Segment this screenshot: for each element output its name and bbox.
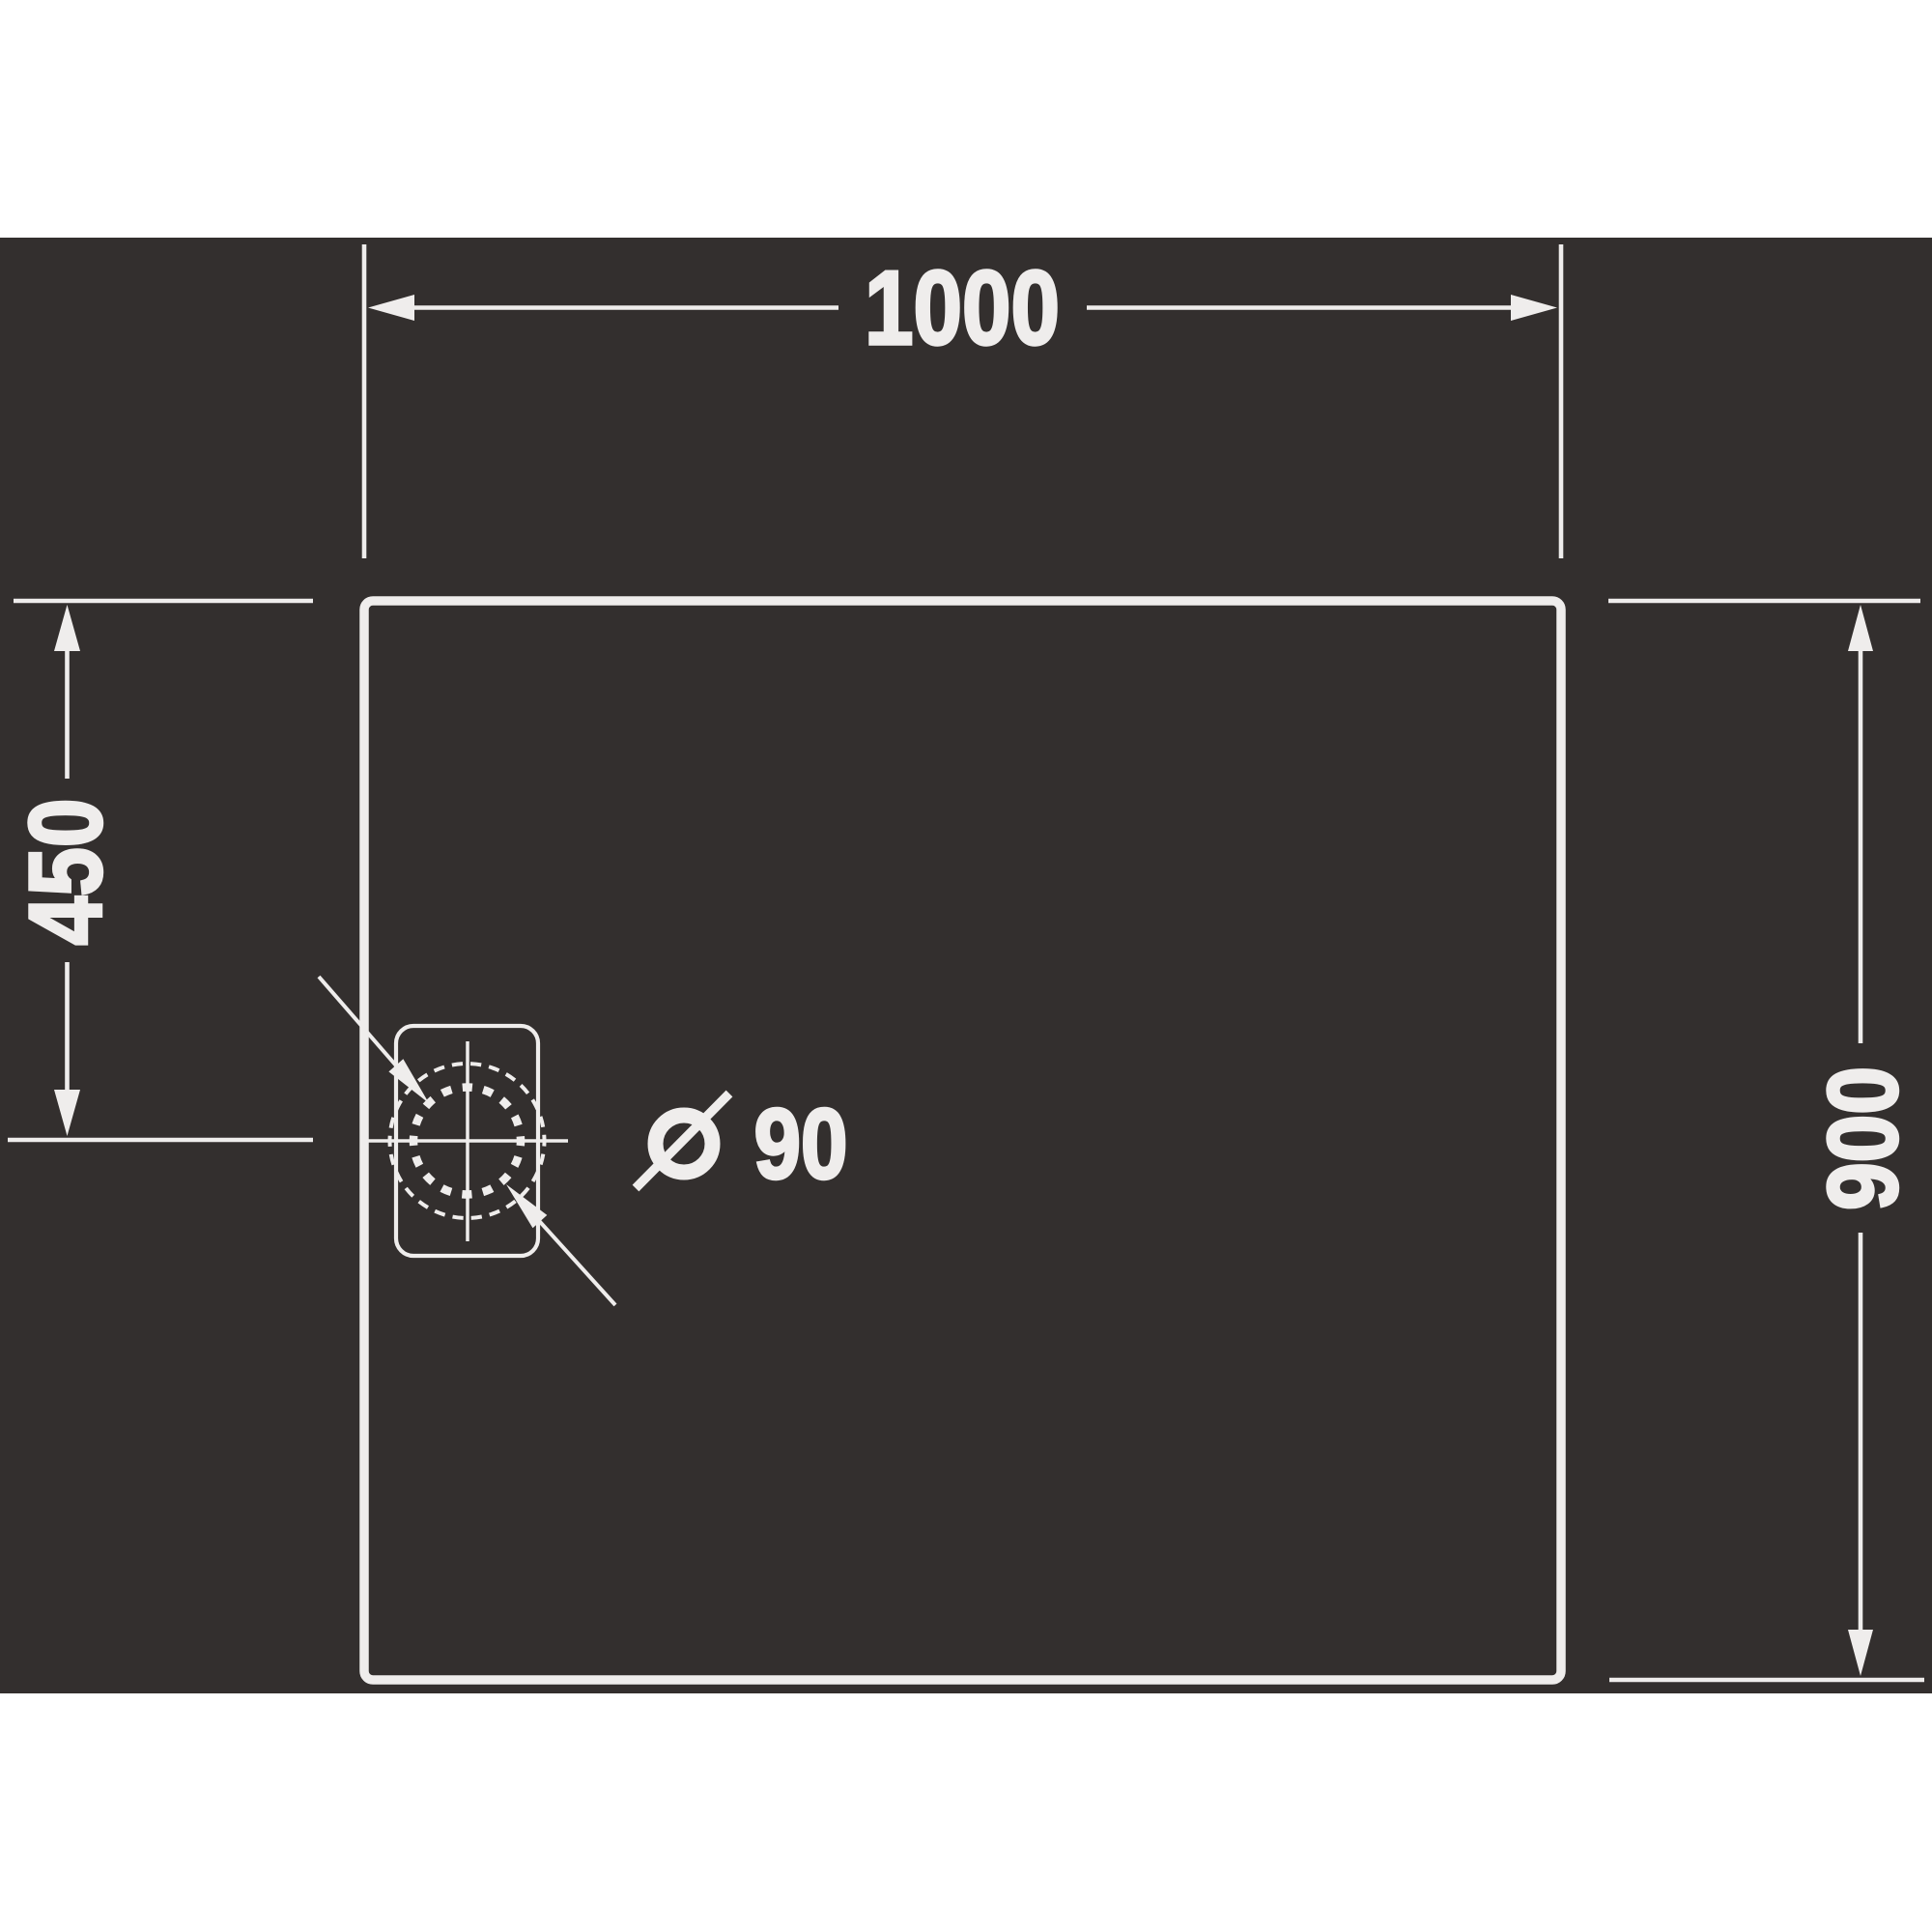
svg-text:1000: 1000 [865, 249, 1060, 367]
svg-text:900: 900 [1808, 1066, 1918, 1210]
svg-text:90: 90 [754, 1089, 848, 1200]
svg-text:450: 450 [8, 799, 124, 946]
